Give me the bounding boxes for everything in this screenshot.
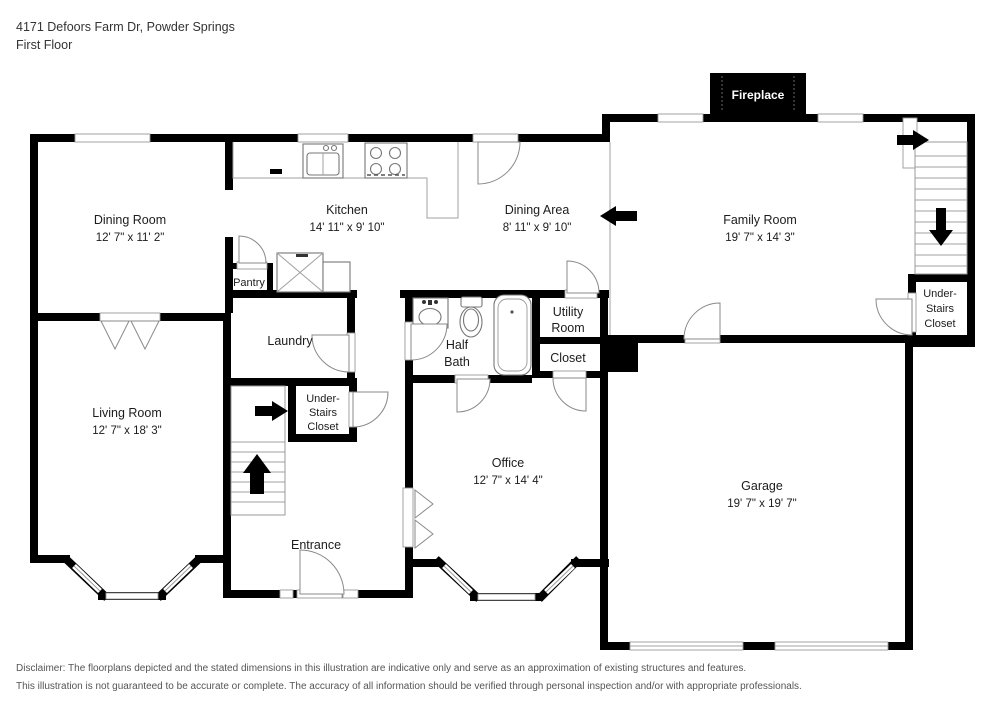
bay-window-living [66,559,199,600]
double-door [101,321,129,349]
svg-text:Room: Room [551,321,584,335]
svg-text:19' 7" x 14' 3": 19' 7" x 14' 3" [725,232,794,244]
svg-text:Stairs: Stairs [926,303,955,315]
door-arc [684,303,720,339]
garage-door [775,642,888,650]
stove [365,143,407,178]
door-arc [876,299,912,335]
room-label-family-room: Family Room 19' 7" x 14' 3" [723,213,797,244]
room-label-dining-area: Dining Area 8' 11" x 9' 10" [503,203,572,234]
room-label-dining-room: Dining Room 12' 7" x 11' 2" [94,213,166,244]
disclaimer-line-1: Disclaimer: The floorplans depicted and … [16,660,986,678]
svg-text:8' 11" x 9' 10": 8' 11" x 9' 10" [503,222,572,234]
svg-text:Closet: Closet [307,421,338,433]
door-arc [411,324,447,360]
svg-text:Closet: Closet [924,318,955,330]
walls [30,114,975,650]
svg-text:12' 7" x 14' 4": 12' 7" x 14' 4" [473,475,542,487]
floorplan-drawing: Fireplace Dining Room 12' 7" x 11' 2" Ki… [0,0,1000,707]
door-arc [239,236,266,263]
svg-text:Garage: Garage [741,479,783,493]
disclaimer: Disclaimer: The floorplans depicted and … [16,660,986,696]
door-arc [300,550,344,594]
room-label-pantry: Pantry [233,277,265,289]
kitchen-sink [303,144,343,178]
disclaimer-line-2: This illustration is not guaranteed to b… [16,678,986,696]
svg-text:14' 11" x 9' 10": 14' 11" x 9' 10" [309,222,384,234]
svg-text:Laundry: Laundry [267,334,313,348]
room-label-under-stairs-closet-middle: Under- Stairs Closet [306,393,340,433]
address-line: 4171 Defoors Farm Dr, Powder Springs [16,18,235,36]
bay-window-office [436,559,579,601]
svg-text:Living Room: Living Room [92,406,161,420]
door-arc [553,378,586,411]
fireplace-label: Fireplace [732,88,785,102]
door-arc [457,379,490,412]
svg-text:Utility: Utility [553,305,584,319]
svg-text:19' 7" x 19' 7": 19' 7" x 19' 7" [727,498,796,510]
svg-text:Half: Half [446,338,469,352]
door-arc [478,142,520,184]
room-label-half-bath: Half Bath [444,338,470,369]
bathtub [494,295,531,375]
kitchen-cabinet [277,253,350,292]
double-door [415,520,433,548]
svg-text:Entrance: Entrance [291,538,341,552]
svg-text:12' 7" x 18' 3": 12' 7" x 18' 3" [92,425,161,437]
svg-text:Dining Area: Dining Area [505,203,570,217]
plan-header: 4171 Defoors Farm Dr, Powder Springs Fir… [16,18,235,54]
room-label-under-stairs-closet-right: Under- Stairs Closet [923,288,957,330]
svg-text:Family Room: Family Room [723,213,797,227]
svg-text:Stairs: Stairs [309,407,338,419]
door-arc [312,335,349,372]
room-label-office: Office 12' 7" x 14' 4" [473,456,542,487]
garage-door [630,642,743,650]
room-label-laundry: Laundry [267,334,313,348]
chimney-block [608,343,638,372]
room-label-living-room: Living Room 12' 7" x 18' 3" [92,406,161,437]
floorplan-page: 4171 Defoors Farm Dr, Powder Springs Fir… [0,0,1000,707]
svg-text:Dining Room: Dining Room [94,213,166,227]
toilet [460,297,482,337]
svg-text:Under-: Under- [306,393,340,405]
room-label-closet: Closet [550,351,586,365]
door-arc [567,261,599,293]
svg-text:Pantry: Pantry [233,277,265,289]
room-label-kitchen: Kitchen 14' 11" x 9' 10" [309,203,384,234]
svg-text:Kitchen: Kitchen [326,203,368,217]
double-door [131,321,159,349]
room-label-utility-room: Utility Room [551,305,584,335]
svg-text:Office: Office [492,456,524,470]
floor-label: First Floor [16,36,235,54]
room-label-garage: Garage 19' 7" x 19' 7" [727,479,796,510]
left-arrow-icon [600,206,637,226]
svg-text:Bath: Bath [444,355,470,369]
svg-text:Under-: Under- [923,288,957,300]
double-door [415,490,433,518]
room-label-entrance: Entrance [291,538,341,552]
fireplace: Fireplace [710,73,806,115]
svg-text:Closet: Closet [550,351,586,365]
door-arc [353,392,388,427]
svg-text:12' 7" x 11' 2": 12' 7" x 11' 2" [96,232,165,244]
